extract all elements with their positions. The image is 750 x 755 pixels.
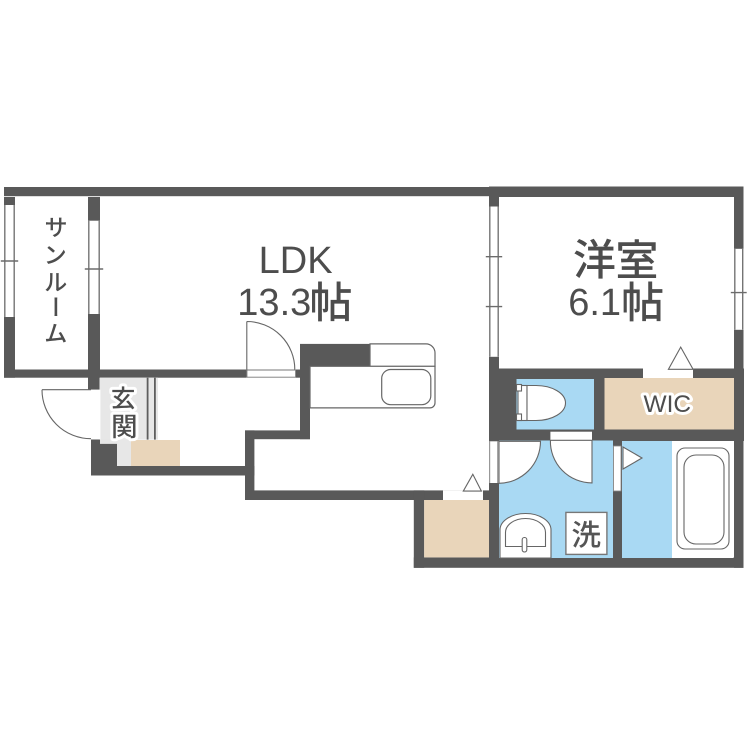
svg-text:6.1: 6.1 (568, 282, 621, 324)
svg-text:LDK: LDK (259, 240, 333, 282)
svg-text:13.3: 13.3 (237, 282, 311, 324)
svg-text:WIC: WIC (643, 391, 691, 418)
